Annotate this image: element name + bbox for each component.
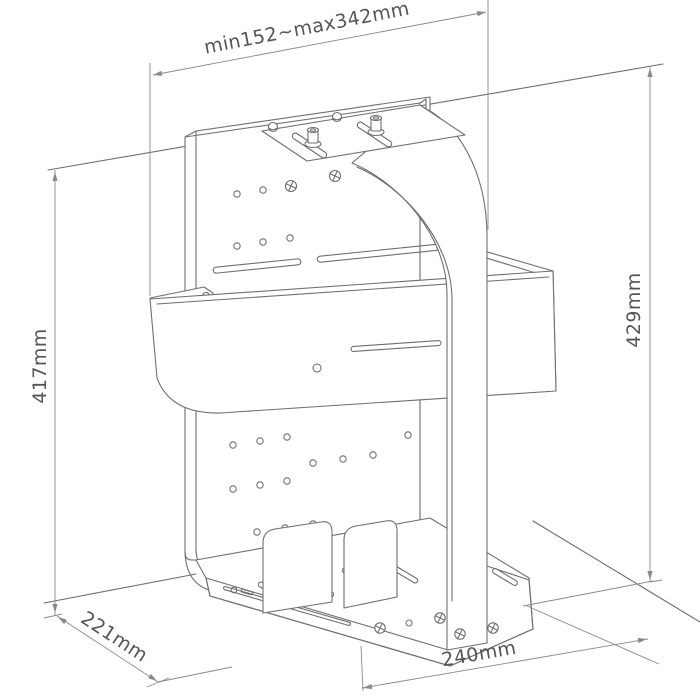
dome-screw-right xyxy=(333,113,342,122)
dimension-label-right-height: 429mm xyxy=(623,272,645,347)
mount-technical-drawing: min152~max342mm 417mm 429mm 221mm 240mm xyxy=(0,0,700,700)
dimension-label-depth: 221mm xyxy=(77,607,152,667)
panel-screw-top xyxy=(286,181,297,192)
dimension-label-width-range: min152~max342mm xyxy=(202,0,411,59)
base-divider-tabs xyxy=(263,521,397,613)
dome-screw-left xyxy=(269,123,278,132)
technical-drawing-canvas: min152~max342mm 417mm 429mm 221mm 240mm xyxy=(0,0,700,700)
dimension-label-left-height: 417mm xyxy=(29,328,51,403)
